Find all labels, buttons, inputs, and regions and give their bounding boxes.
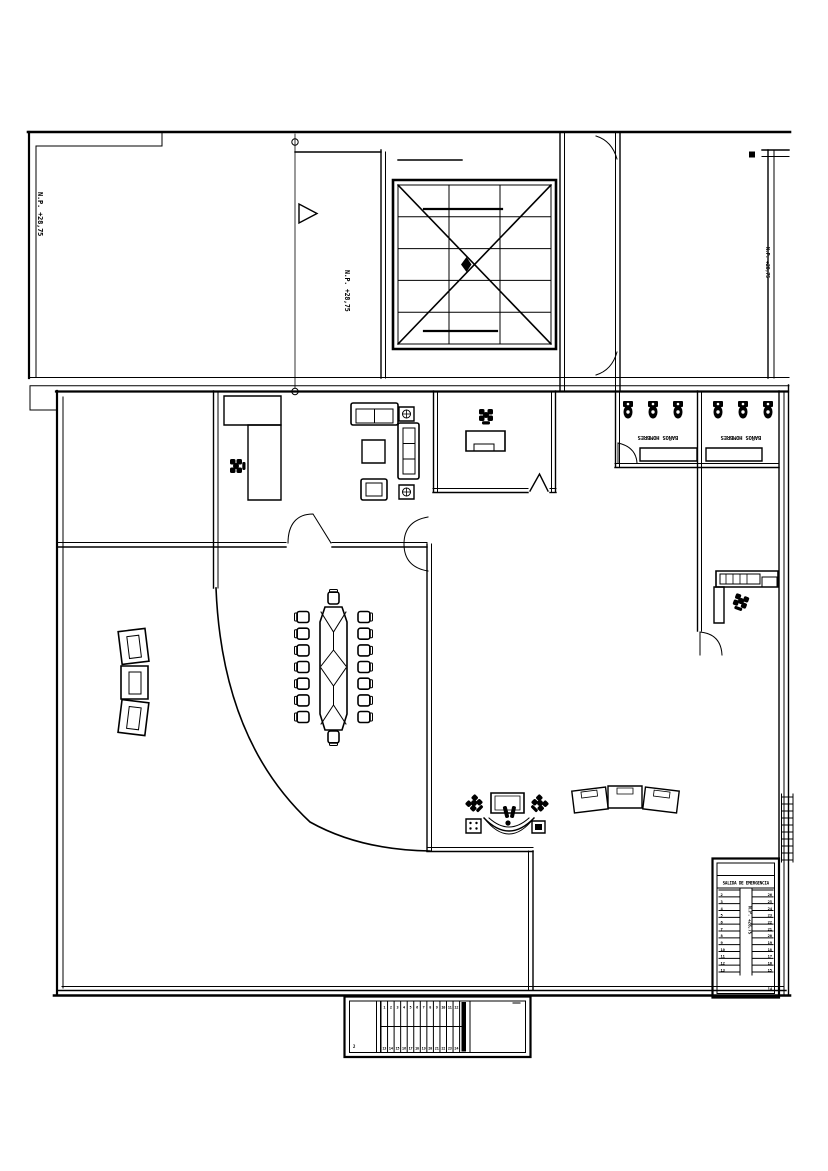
coffee-table xyxy=(362,440,385,463)
equipment-box-left xyxy=(466,819,481,833)
step-number: 18 xyxy=(415,1047,419,1051)
conference-chair xyxy=(358,662,373,673)
stair-bottom-step: 14 xyxy=(768,987,773,992)
office-desk xyxy=(466,431,505,451)
upper-corridor xyxy=(560,133,620,391)
curved-glass-wall xyxy=(216,588,430,851)
step-number: 2 xyxy=(721,892,723,897)
toilet-icon xyxy=(713,401,723,419)
stair-left-mark: 2 xyxy=(353,1044,356,1049)
step-number: 17 xyxy=(409,1047,413,1051)
door-swing-top xyxy=(596,136,617,159)
conference-chair xyxy=(358,612,373,623)
display-cabinets xyxy=(118,628,149,735)
step-number: 3 xyxy=(396,1006,398,1010)
sink-counter-left xyxy=(640,448,697,461)
step-number: 12 xyxy=(721,961,725,966)
conference-chair xyxy=(358,712,373,723)
step-number: 12 xyxy=(454,1006,458,1010)
double-door-leaf-bottom xyxy=(404,544,428,571)
executive-office xyxy=(698,391,779,655)
step-number: 5 xyxy=(410,1006,412,1010)
office-chair xyxy=(230,459,246,473)
step-number: 10 xyxy=(441,1006,445,1010)
sink-counter-right xyxy=(706,448,762,461)
step-number: 4 xyxy=(403,1006,405,1010)
step-number: 24 xyxy=(454,1047,458,1051)
studio-chair-right xyxy=(528,794,549,815)
conference-chair xyxy=(295,628,310,639)
conference-chair xyxy=(358,645,373,656)
conference-chair xyxy=(295,645,310,656)
step-number: 14 xyxy=(389,1047,393,1051)
step-number: 15 xyxy=(395,1047,399,1051)
bathroom-label-right: BAÑOS HOMBRES xyxy=(721,434,761,441)
lobby-seating xyxy=(351,403,419,500)
door-swing-executive xyxy=(700,632,722,655)
conference-chair xyxy=(328,590,339,605)
door-swing-bathroom xyxy=(618,443,637,463)
step-number: 9 xyxy=(436,1006,438,1010)
double-door-leaf-top xyxy=(404,517,428,544)
studio-chair-left xyxy=(465,794,486,815)
conference-chair xyxy=(295,695,310,706)
step-number: 13 xyxy=(382,1047,386,1051)
main-staircase: 123456789101112131415161718192021222324 … xyxy=(345,997,531,1058)
step-number: 19 xyxy=(422,1047,426,1051)
level-label-right-wall: N.P. +28,75 xyxy=(764,247,770,278)
step-number: 1 xyxy=(383,1006,385,1010)
stair-header-label: SALIDA DE EMERGENCIA xyxy=(723,880,770,885)
conference-chairs xyxy=(295,590,373,746)
studio-set xyxy=(465,786,679,834)
sofa-vertical xyxy=(398,423,419,479)
step-number: 2 xyxy=(390,1006,392,1010)
upper-mid-room xyxy=(295,150,386,378)
toilet-icon xyxy=(623,401,633,419)
emergency-stair-steps: 2345678910111213262524232221201918171615 xyxy=(719,890,773,972)
main-floor-shell xyxy=(30,385,790,996)
level-label-upper-left: N.P. +28,75 xyxy=(36,192,44,236)
step-number: 17 xyxy=(768,954,772,959)
emergency-staircase: SALIDA DE EMERGENCIA 2345678910111213262… xyxy=(713,859,780,998)
conference-chair xyxy=(358,678,373,689)
toilet-icon xyxy=(673,401,683,419)
conference-room xyxy=(216,544,533,990)
conference-chair xyxy=(295,678,310,689)
step-number: 22 xyxy=(768,920,772,925)
door-swing-office xyxy=(530,474,548,491)
step-number: 23 xyxy=(448,1047,452,1051)
conference-table xyxy=(320,607,347,730)
private-office xyxy=(433,391,556,493)
toilet-icon xyxy=(648,401,658,419)
conference-chair xyxy=(295,662,310,673)
conference-chair xyxy=(295,612,310,623)
floor-plan-page: N.P. +28,75 N.P. +28,75 N.P. +28,75 xyxy=(0,0,828,1171)
stair-level-label: N.P. +28,75 xyxy=(747,906,753,935)
conference-chair xyxy=(295,712,310,723)
toilet-icon xyxy=(763,401,773,419)
bathroom-label-left: BAÑOS HOMBRES xyxy=(638,434,678,441)
step-number: 7 xyxy=(423,1006,425,1010)
door-swing-reception xyxy=(288,514,331,543)
skylight-shaft xyxy=(393,160,556,349)
step-number: 16 xyxy=(402,1047,406,1051)
conference-chair xyxy=(358,695,373,706)
level-label-upper-mid: N.P. +28,75 xyxy=(343,270,351,312)
armchair xyxy=(361,479,387,500)
reception-desk xyxy=(224,396,281,500)
office-chair xyxy=(479,409,493,425)
column-marker xyxy=(749,152,755,158)
stair-stringer xyxy=(462,1002,467,1052)
conference-chair xyxy=(328,731,339,746)
step-number: 22 xyxy=(441,1047,445,1051)
reception-room xyxy=(57,391,428,588)
service-ladder xyxy=(782,794,794,862)
step-number: 11 xyxy=(448,1006,452,1010)
floor-plan-drawing: N.P. +28,75 N.P. +28,75 N.P. +28,75 xyxy=(0,0,828,1171)
upper-level: N.P. +28,75 N.P. +28,75 N.P. +28,75 xyxy=(28,132,790,395)
step-number: 20 xyxy=(428,1047,432,1051)
step-number: 6 xyxy=(416,1006,418,1010)
step-number: 8 xyxy=(429,1006,431,1010)
desk-return xyxy=(714,587,724,623)
step-number: 21 xyxy=(435,1047,439,1051)
anchor-desk-row xyxy=(572,786,679,813)
door-swing-bottom xyxy=(596,352,617,375)
hatch-triangle-symbol xyxy=(299,204,317,223)
office-chair xyxy=(731,593,749,612)
ladder-rungs xyxy=(782,797,794,860)
toilet-icon xyxy=(738,401,748,419)
conference-chair xyxy=(358,628,373,639)
step-number: 7 xyxy=(721,926,723,931)
